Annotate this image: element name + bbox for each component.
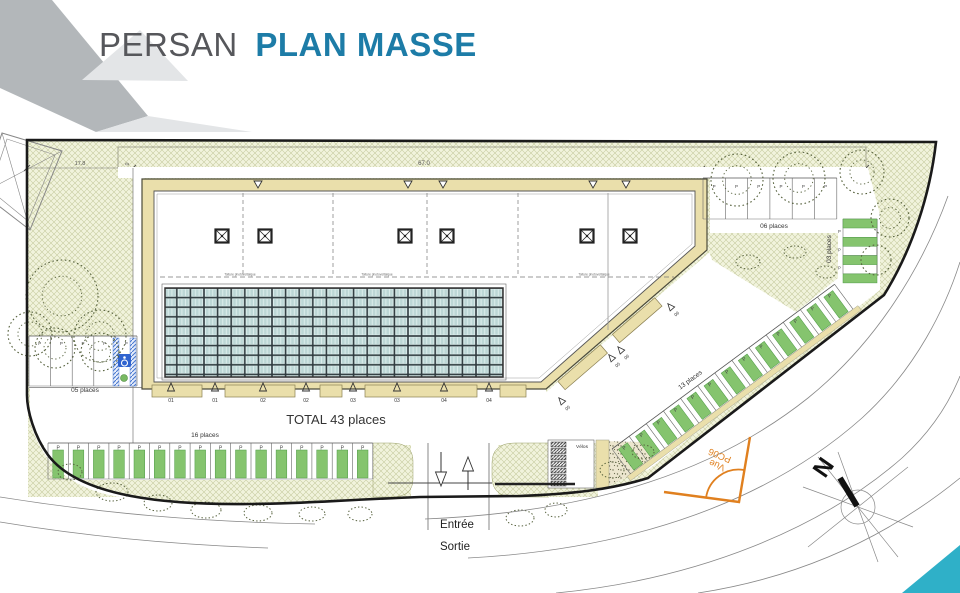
bike-rack: [551, 442, 566, 447]
parking-label-p03: 03 places: [826, 234, 833, 263]
stall-marker: P: [824, 184, 827, 189]
velos-label: Vélos: [576, 444, 589, 450]
dock-platform: [320, 385, 342, 397]
tree-marker-icon: [121, 375, 128, 382]
parking-label-p06: 06 places: [760, 223, 789, 230]
bike-rack: [551, 455, 566, 460]
dimension-17-8: 17.8: [75, 161, 86, 167]
grass-stall: [276, 450, 287, 478]
grass-stall: [843, 256, 877, 265]
grass-stall: [317, 450, 328, 478]
dock-number: 01: [168, 398, 174, 404]
bike-rack: [551, 468, 566, 473]
stall-marker: P: [735, 184, 738, 189]
grass-stall: [175, 450, 186, 478]
stall-marker: P: [802, 184, 805, 189]
bike-rack: [551, 449, 566, 454]
shrub: [299, 507, 325, 521]
stall-marker: P: [125, 341, 128, 346]
bike-parking: Vélos: [548, 440, 609, 488]
roof-pv-array: [162, 284, 506, 380]
grass-stall: [337, 450, 348, 478]
grass-stall: [73, 450, 84, 478]
dock-platform: [500, 385, 526, 397]
grass-stall: [256, 450, 267, 478]
column-dot: [586, 235, 588, 237]
column-dot: [629, 235, 631, 237]
grass-stall: [843, 219, 877, 228]
dock-number: 02: [303, 398, 309, 404]
dock-number: 04: [441, 398, 447, 404]
bike-rack: [551, 475, 566, 480]
bike-rack: [551, 462, 566, 467]
page-title: PERSAN PLAN MASSE: [99, 26, 477, 64]
column-dot: [446, 235, 448, 237]
stall-marker: P: [838, 266, 841, 271]
dock-number: 01: [212, 398, 218, 404]
stall-marker: P: [780, 184, 783, 189]
column-dot: [264, 235, 266, 237]
corner-accent: [902, 545, 960, 593]
dock-platform: [152, 385, 202, 397]
column-dot: [221, 235, 223, 237]
grass-stall: [843, 274, 877, 283]
shrub: [348, 507, 372, 521]
grass-stall: [195, 450, 206, 478]
parking-label-p16: 16 places: [191, 432, 220, 439]
corner-decoration: [0, 0, 252, 132]
grass-stall: [134, 450, 145, 478]
roof-note: Toiture photovoltaïque: [224, 273, 256, 277]
stall-marker: P: [713, 184, 716, 189]
dock-number: 03: [394, 398, 400, 404]
shrub: [244, 505, 272, 521]
bike-racks: [551, 442, 566, 486]
stall-marker: P: [757, 184, 760, 189]
total-places-label: TOTAL 43 places: [286, 412, 386, 427]
dock-number: 02: [260, 398, 266, 404]
grass-stall: [93, 450, 104, 478]
stall-marker: P: [838, 229, 841, 234]
road-line: [698, 478, 960, 593]
entree-label: Entrée: [440, 519, 474, 531]
grass-stall: [215, 450, 226, 478]
dock-number: 03: [350, 398, 356, 404]
dock-number: 04: [486, 398, 492, 404]
parking-label-p05: 05 places: [71, 387, 100, 394]
site-plan-drawing: 17.8 67.0 6.0 Toiture phot: [0, 0, 960, 593]
grass-stall: [114, 450, 125, 478]
column-dot: [404, 235, 406, 237]
road-line: [0, 522, 268, 548]
title-plan-type: PLAN MASSE: [255, 26, 476, 63]
grass-stall: [357, 450, 368, 478]
sortie-label: Sortie: [440, 541, 470, 553]
grass-stall: [843, 237, 877, 246]
stall-marker: P: [838, 247, 841, 252]
title-project: PERSAN: [99, 26, 238, 63]
grass-stall: [236, 450, 247, 478]
grass-stall: [296, 450, 307, 478]
roof-note: Toiture photovoltaïque: [361, 273, 393, 277]
grass-stall: [154, 450, 165, 478]
dimension-67-0: 67.0: [418, 161, 430, 167]
roof-note: Toiture photovoltaïque: [578, 273, 610, 277]
dock-platform: [365, 385, 477, 397]
north-arrow-icon: N: [803, 452, 913, 562]
stall-marker: P: [60, 341, 63, 346]
